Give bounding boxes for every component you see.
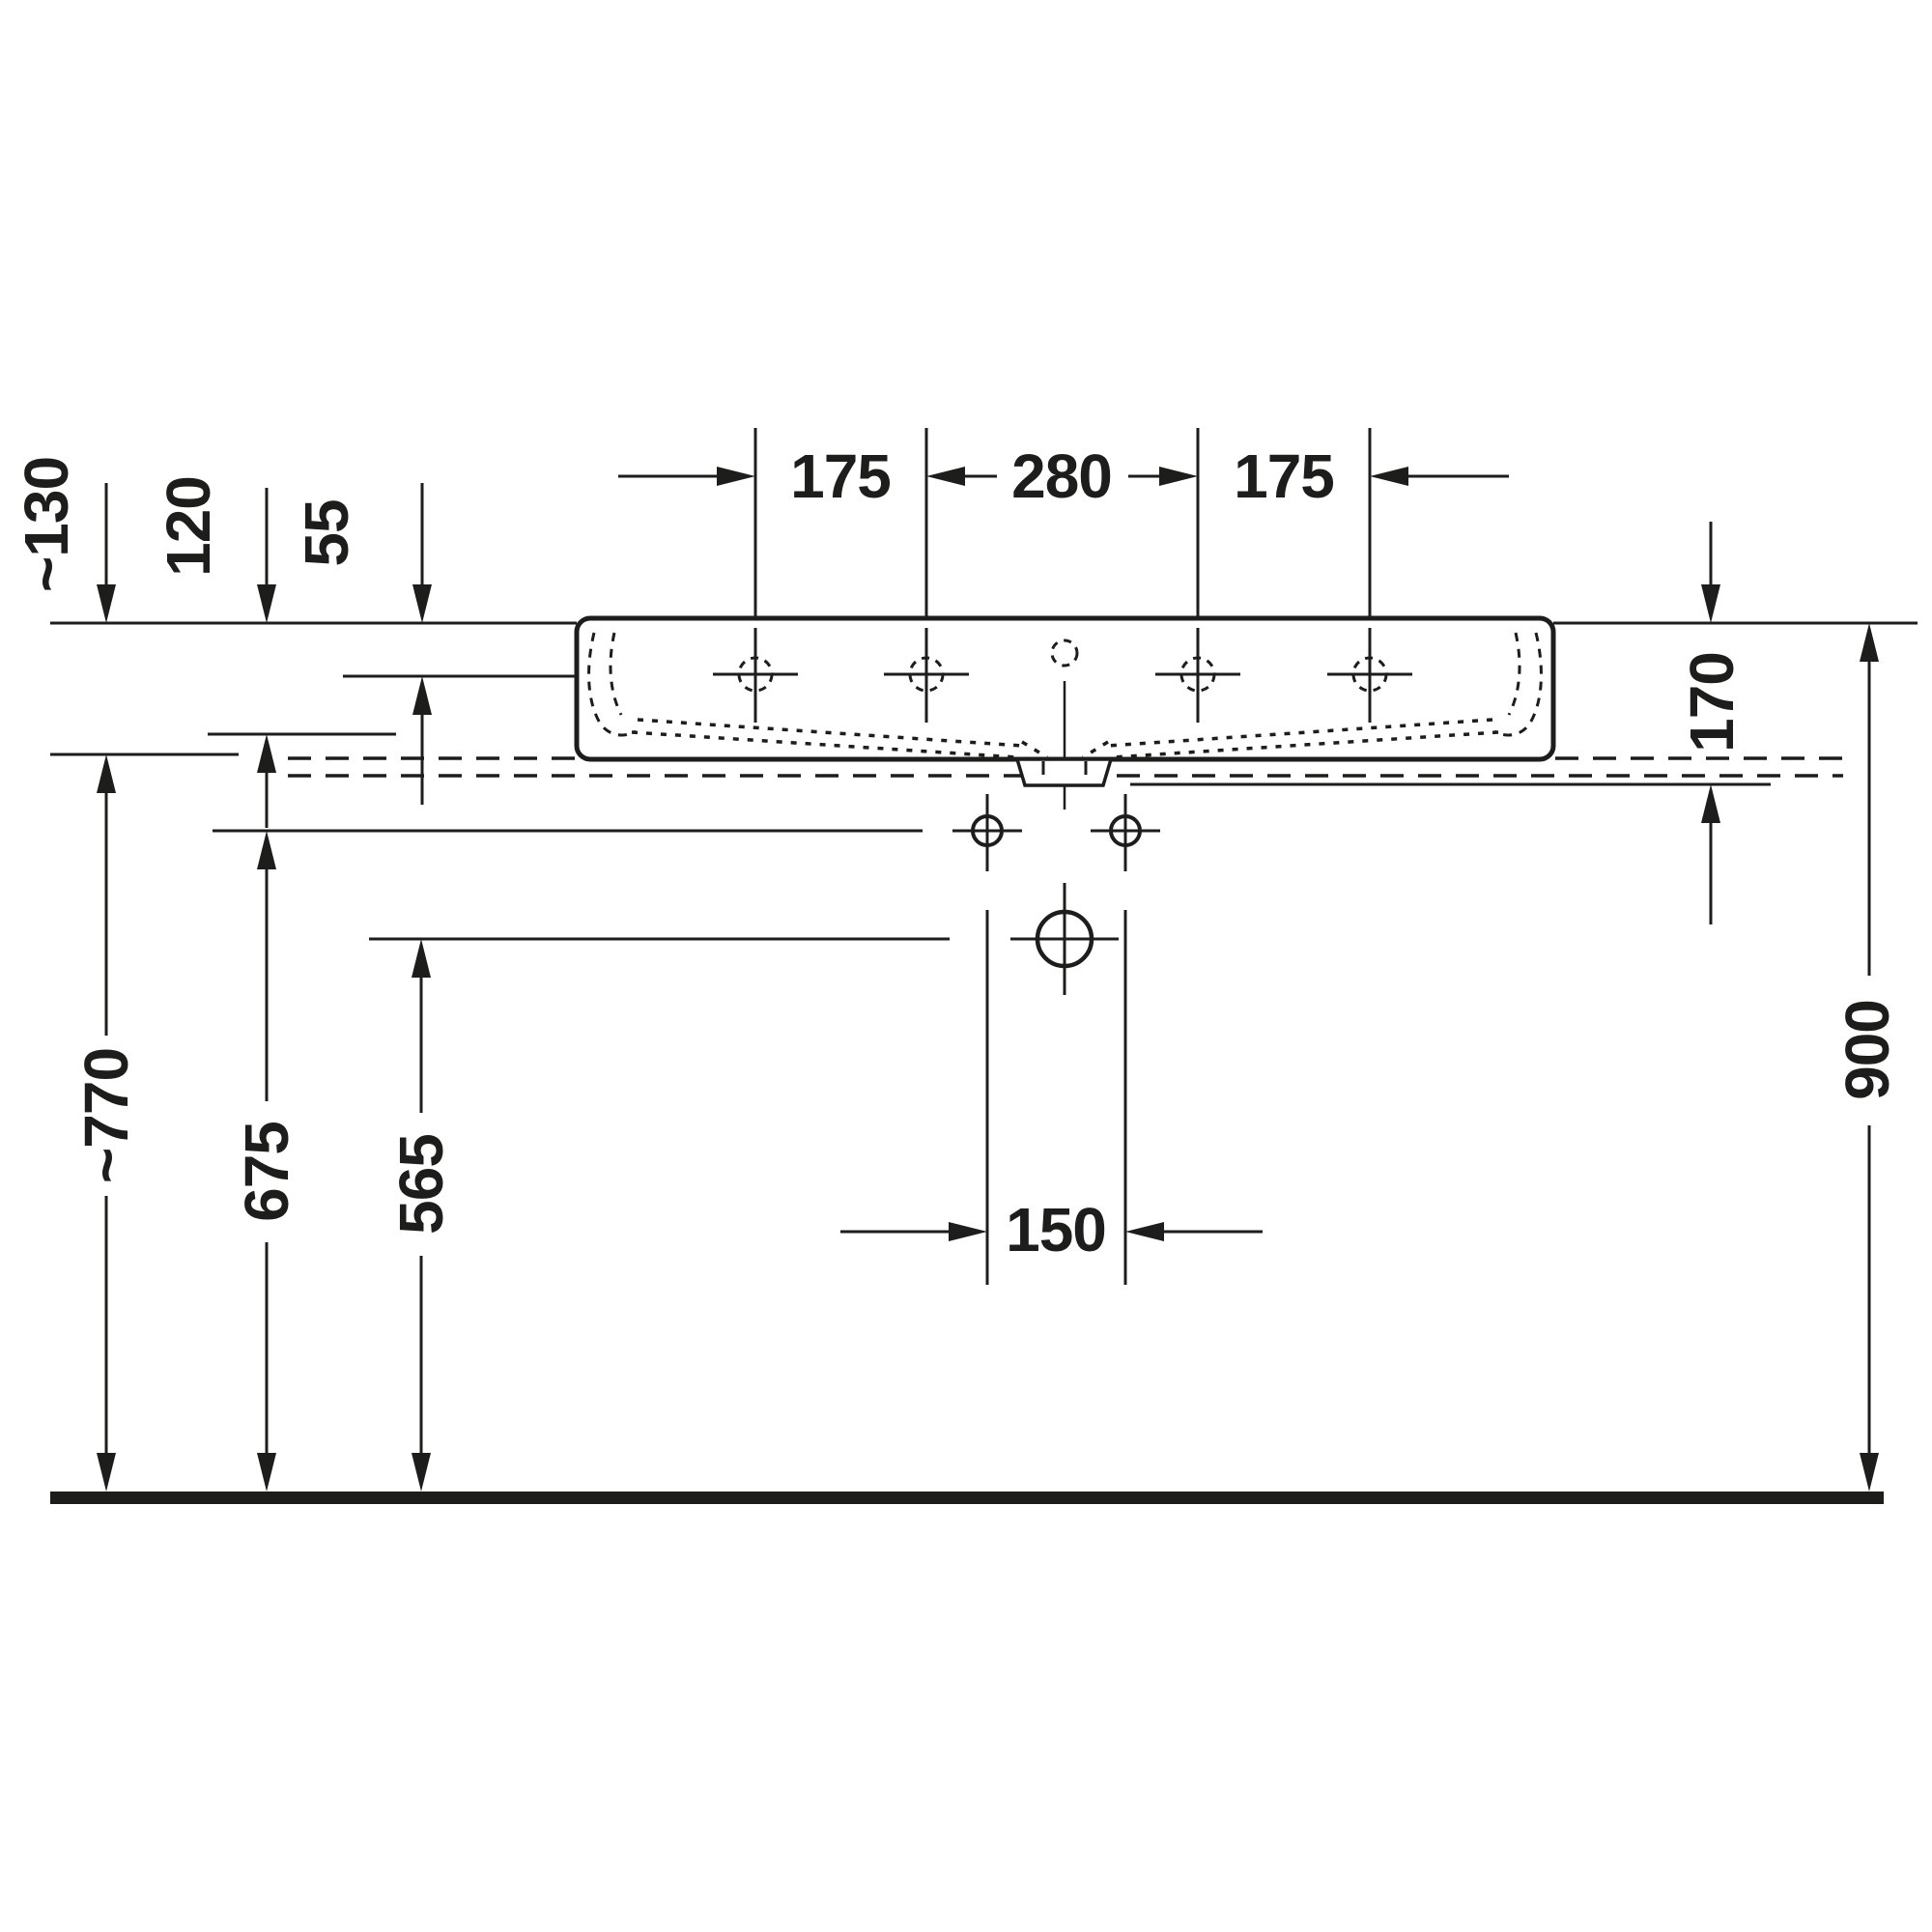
washbasin-dimension-diagram: 175 280 175 150 ~130 120 55 170 ~770 675… bbox=[0, 0, 1932, 1932]
arrow-right-175L bbox=[717, 467, 755, 486]
dim-label-rim-to-tap-hole: 55 bbox=[292, 499, 361, 566]
dim-label-floor-to-fixing: 675 bbox=[232, 1122, 301, 1222]
dim-label-fixing-spacing: 150 bbox=[1006, 1195, 1106, 1264]
dim-label-rim-to-wall: 170 bbox=[1677, 652, 1747, 753]
arrow-up-170 bbox=[1701, 784, 1720, 823]
arrow-up-900 bbox=[1860, 623, 1879, 662]
arrow-up-675 bbox=[257, 831, 276, 869]
fixing-hole-right bbox=[1091, 794, 1160, 871]
arrow-down-120 bbox=[257, 584, 276, 623]
arrow-down-770-floor bbox=[97, 1453, 116, 1492]
dim-label-rim-to-underside: ~130 bbox=[12, 457, 81, 592]
arrow-down-130 bbox=[97, 584, 116, 623]
washbasin-body bbox=[577, 618, 1553, 810]
arrow-down-55 bbox=[412, 584, 432, 623]
dim-label-tap-right: 175 bbox=[1234, 441, 1334, 511]
dim-label-floor-to-underside: ~770 bbox=[71, 1048, 141, 1183]
arrow-right-280 bbox=[1159, 467, 1198, 486]
arrow-down-565-floor bbox=[412, 1453, 431, 1492]
drain-trap bbox=[1017, 759, 1111, 785]
arrow-up-770 bbox=[97, 754, 116, 793]
arrow-up-565 bbox=[412, 939, 431, 978]
arrow-down-900-floor bbox=[1860, 1453, 1879, 1492]
arrow-left-175R bbox=[1370, 467, 1408, 486]
dimension-labels: 175 280 175 150 ~130 120 55 170 ~770 675… bbox=[12, 441, 1902, 1264]
extension-lines bbox=[755, 428, 1370, 1285]
arrow-down-170 bbox=[1701, 584, 1720, 623]
dim-label-floor-to-drain: 565 bbox=[386, 1134, 456, 1235]
arrow-down-675-floor bbox=[257, 1453, 276, 1492]
dim-label-rim-to-overflow: 120 bbox=[154, 476, 223, 577]
dim-label-floor-to-rim: 900 bbox=[1833, 1000, 1902, 1100]
arrow-left-280 bbox=[926, 467, 965, 486]
dim-label-tap-left: 175 bbox=[790, 441, 891, 511]
drawing-canvas: 175 280 175 150 ~130 120 55 170 ~770 675… bbox=[0, 0, 1932, 1932]
drain-connection bbox=[1010, 883, 1119, 995]
dim-label-tap-center: 280 bbox=[1011, 441, 1112, 511]
arrow-up-120 bbox=[257, 734, 276, 773]
arrow-right-150 bbox=[949, 1222, 987, 1241]
fixing-holes bbox=[952, 794, 1160, 995]
arrow-up-55 bbox=[412, 676, 432, 715]
fixing-hole-left bbox=[952, 794, 1022, 871]
floor-line bbox=[50, 1492, 1884, 1504]
arrow-left-150 bbox=[1125, 1222, 1164, 1241]
